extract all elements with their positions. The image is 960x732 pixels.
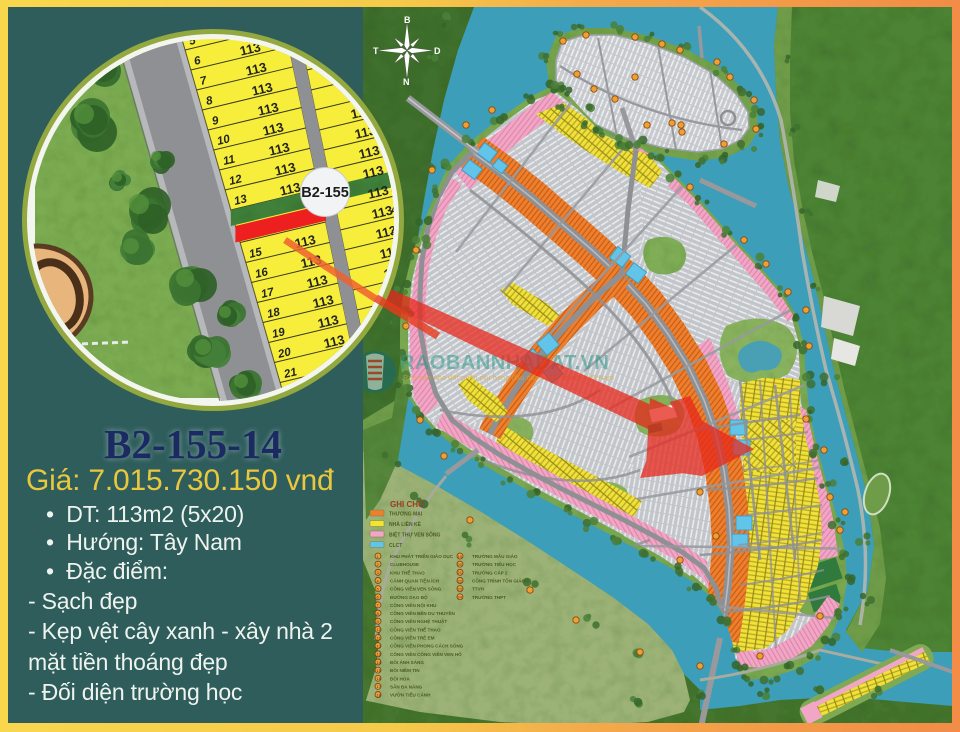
svg-text:18: 18 bbox=[377, 692, 382, 697]
svg-text:CÔNG VIÊN PHONG CÁCH SỐNG: CÔNG VIÊN PHONG CÁCH SỐNG bbox=[390, 642, 464, 649]
svg-text:21: 21 bbox=[458, 570, 463, 575]
svg-text:20: 20 bbox=[458, 562, 463, 567]
svg-text:TRƯỜNG TIỂU HỌC: TRƯỜNG TIỂU HỌC bbox=[472, 560, 517, 567]
svg-text:22: 22 bbox=[458, 578, 463, 583]
svg-text:CÔNG VIÊN CÔNG VIÊN VEN HỒ: CÔNG VIÊN CÔNG VIÊN VEN HỒ bbox=[390, 650, 462, 657]
svg-text:TRƯỜNG CẤP 2: TRƯỜNG CẤP 2 bbox=[472, 568, 508, 575]
svg-text:16: 16 bbox=[377, 676, 382, 681]
svg-text:KHU THỂ THAO: KHU THỂ THAO bbox=[390, 569, 425, 575]
svg-text:ĐỒI ÁNH SÁNG: ĐỒI ÁNH SÁNG bbox=[390, 659, 424, 665]
svg-text:TRƯỜNG THPT: TRƯỜNG THPT bbox=[472, 593, 506, 600]
svg-text:23: 23 bbox=[458, 586, 463, 591]
svg-text:CÔNG VIÊN VEN SÔNG: CÔNG VIÊN VEN SÔNG bbox=[390, 585, 442, 592]
svg-text:24: 24 bbox=[458, 595, 463, 600]
svg-text:GHI CHÚ: GHI CHÚ bbox=[390, 500, 424, 509]
svg-text:14: 14 bbox=[377, 660, 382, 665]
svg-text:CÔNG VIÊN BẾN DU THUYỀN: CÔNG VIÊN BẾN DU THUYỀN bbox=[390, 609, 456, 616]
svg-text:N: N bbox=[403, 77, 410, 87]
svg-text:CÔNG VIÊN NGHỆ THUẬT: CÔNG VIÊN NGHỆ THUẬT bbox=[390, 617, 447, 624]
svg-text:CLCT: CLCT bbox=[389, 543, 402, 549]
svg-text:CÔNG VIÊN NỘI KHU: CÔNG VIÊN NỘI KHU bbox=[390, 601, 437, 608]
svg-text:TTVH: TTVH bbox=[472, 587, 485, 592]
svg-text:KHU PHÁT TRIỂN GIÁO DỤC: KHU PHÁT TRIỂN GIÁO DỤC bbox=[390, 553, 454, 559]
svg-text:19: 19 bbox=[458, 554, 463, 559]
svg-text:ĐỒI HOA: ĐỒI HOA bbox=[390, 675, 410, 681]
svg-text:VƯỜN TIỂU CẢNH: VƯỜN TIỂU CẢNH bbox=[390, 691, 431, 698]
svg-text:SÂN ĐA NĂNG: SÂN ĐA NĂNG bbox=[390, 683, 423, 689]
svg-text:17: 17 bbox=[377, 684, 382, 689]
svg-text:TRƯỜNG MẪU GIÁO: TRƯỜNG MẪU GIÁO bbox=[472, 552, 518, 559]
svg-text:10: 10 bbox=[377, 627, 382, 632]
svg-text:15: 15 bbox=[377, 668, 382, 673]
svg-text:B2-155: B2-155 bbox=[301, 185, 349, 201]
svg-text:CÔNG VIÊN TRẺ EM: CÔNG VIÊN TRẺ EM bbox=[390, 634, 435, 641]
svg-text:D: D bbox=[434, 46, 441, 56]
svg-text:CÔNG VIÊN THỂ THAO: CÔNG VIÊN THỂ THAO bbox=[390, 625, 441, 632]
svg-text:B: B bbox=[404, 15, 411, 25]
svg-text:ĐƯỜNG DẠO BỘ: ĐƯỜNG DẠO BỘ bbox=[390, 593, 428, 600]
svg-text:T: T bbox=[373, 46, 379, 56]
svg-text:BIỆT THỰ VEN SÔNG: BIỆT THỰ VEN SÔNG bbox=[389, 531, 440, 539]
svg-text:CÔNG TRÌNH TÔN GIÁO: CÔNG TRÌNH TÔN GIÁO bbox=[472, 576, 526, 583]
svg-text:12: 12 bbox=[377, 643, 382, 648]
svg-text:13: 13 bbox=[377, 652, 382, 657]
svg-text:CẢNH QUAN TIỆN ÍCH: CẢNH QUAN TIỆN ÍCH bbox=[390, 576, 440, 583]
svg-text:CLUBHOUSE: CLUBHOUSE bbox=[390, 562, 419, 567]
svg-text:THƯƠNG MẠI: THƯƠNG MẠI bbox=[389, 512, 423, 518]
svg-text:NHÀ LIỀN KỀ: NHÀ LIỀN KỀ bbox=[389, 521, 422, 528]
svg-text:ĐỒI NIỀM TIN: ĐỒI NIỀM TIN bbox=[390, 667, 420, 673]
